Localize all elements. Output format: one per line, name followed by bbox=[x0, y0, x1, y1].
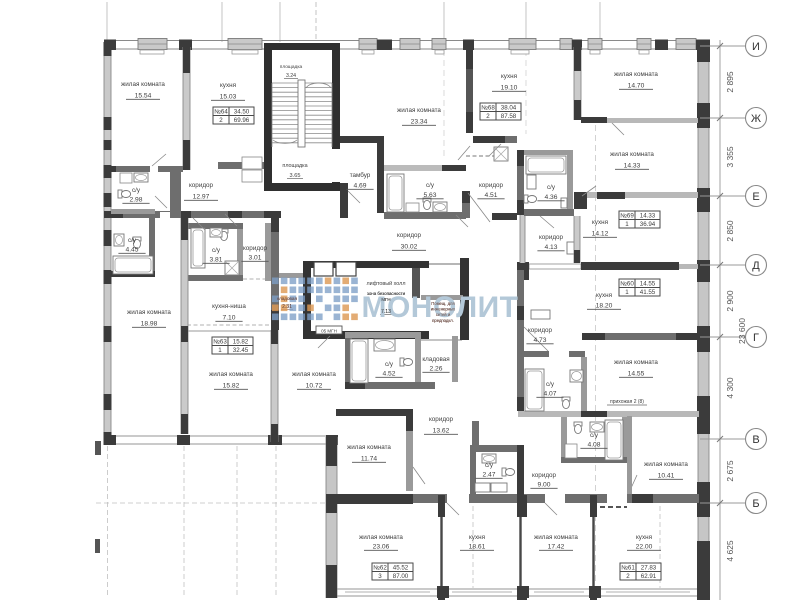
svg-text:прихожая 2 (8): прихожая 2 (8) bbox=[610, 399, 644, 405]
svg-text:4.07: 4.07 bbox=[543, 391, 556, 398]
svg-text:жилая комната: жилая комната bbox=[347, 444, 391, 451]
svg-text:3.01: 3.01 bbox=[248, 255, 261, 262]
svg-text:7.13: 7.13 bbox=[381, 309, 391, 315]
svg-text:15.54: 15.54 bbox=[135, 93, 152, 100]
svg-text:жилая комната: жилая комната bbox=[614, 359, 658, 366]
svg-text:Помещ. для: Помещ. для bbox=[431, 301, 454, 306]
svg-text:14.55: 14.55 bbox=[640, 281, 656, 288]
svg-text:15.82: 15.82 bbox=[233, 339, 249, 346]
svg-text:№69: №69 bbox=[620, 213, 634, 220]
svg-text:4.51: 4.51 bbox=[484, 192, 497, 199]
svg-text:площадка: площадка bbox=[282, 163, 307, 169]
svg-text:И: И bbox=[752, 41, 760, 53]
svg-text:3.65: 3.65 bbox=[290, 173, 301, 179]
svg-text:36.94: 36.94 bbox=[640, 221, 656, 228]
svg-text:№64: №64 bbox=[214, 109, 228, 116]
svg-text:3.24: 3.24 bbox=[286, 73, 296, 79]
svg-text:Д: Д bbox=[752, 260, 760, 272]
svg-text:38.04: 38.04 bbox=[501, 105, 517, 112]
svg-text:7.10: 7.10 bbox=[222, 315, 235, 322]
svg-text:зона безопасности: зона безопасности bbox=[367, 291, 406, 296]
svg-text:19.10: 19.10 bbox=[501, 85, 518, 92]
svg-text:Е: Е bbox=[752, 191, 759, 203]
svg-text:кухня: кухня bbox=[636, 534, 652, 541]
svg-text:27.83: 27.83 bbox=[641, 565, 657, 572]
svg-text:с/у: с/у bbox=[546, 381, 555, 388]
svg-text:4.36: 4.36 bbox=[544, 194, 557, 201]
svg-text:87.00: 87.00 bbox=[393, 573, 409, 580]
svg-text:кухня: кухня bbox=[501, 73, 517, 80]
svg-text:коридор: коридор bbox=[243, 245, 268, 252]
svg-text:69.96: 69.96 bbox=[234, 117, 250, 124]
svg-text:2.31: 2.31 bbox=[282, 304, 292, 310]
svg-text:с/у: с/у bbox=[385, 361, 394, 368]
svg-text:34.50: 34.50 bbox=[234, 109, 250, 116]
svg-text:10.41: 10.41 bbox=[658, 473, 675, 480]
svg-text:коридор: коридор bbox=[479, 182, 504, 189]
svg-text:с/у: с/у bbox=[590, 432, 599, 439]
svg-text:4.45: 4.45 bbox=[125, 247, 138, 254]
svg-text:коридор: коридор bbox=[528, 327, 553, 334]
svg-text:62.91: 62.91 bbox=[641, 573, 657, 580]
svg-text:4.73: 4.73 bbox=[533, 337, 546, 344]
svg-text:жилая комната: жилая комната bbox=[209, 371, 253, 378]
svg-text:коридор: коридор bbox=[397, 232, 422, 239]
svg-text:4.08: 4.08 bbox=[587, 442, 600, 449]
svg-text:коридор: коридор bbox=[532, 472, 557, 479]
svg-text:4 625: 4 625 bbox=[725, 540, 735, 562]
svg-text:4.52: 4.52 bbox=[382, 371, 395, 378]
svg-text:2.26: 2.26 bbox=[429, 366, 442, 373]
svg-text:№61: №61 bbox=[621, 565, 635, 572]
svg-text:жилая комната: жилая комната bbox=[610, 151, 654, 158]
svg-text:сетей и: сетей и bbox=[436, 312, 451, 317]
svg-text:5.63: 5.63 bbox=[423, 192, 436, 199]
svg-text:жилая комната: жилая комната bbox=[397, 107, 441, 114]
svg-text:11.74: 11.74 bbox=[361, 456, 378, 463]
svg-text:кухня: кухня bbox=[596, 292, 612, 299]
svg-text:2.98: 2.98 bbox=[129, 197, 142, 204]
svg-text:жилая комната: жилая комната bbox=[121, 81, 165, 88]
svg-text:4 300: 4 300 bbox=[725, 377, 735, 399]
svg-text:15.82: 15.82 bbox=[223, 383, 240, 390]
svg-text:18.98: 18.98 bbox=[141, 321, 158, 328]
svg-text:с/у: с/у bbox=[132, 187, 141, 194]
svg-text:тамбур: тамбур bbox=[350, 171, 371, 179]
svg-text:14.12: 14.12 bbox=[592, 231, 609, 238]
svg-text:45.52: 45.52 bbox=[393, 565, 409, 572]
svg-text:№68: №68 bbox=[481, 105, 495, 112]
svg-text:коридор: коридор bbox=[189, 182, 214, 189]
svg-text:2 675: 2 675 bbox=[725, 460, 735, 482]
svg-text:В: В bbox=[752, 434, 759, 446]
svg-text:18.61: 18.61 bbox=[469, 544, 486, 551]
svg-text:кухня-ниша: кухня-ниша bbox=[212, 303, 246, 310]
svg-text:23.06: 23.06 bbox=[373, 544, 390, 551]
svg-text:кладовая: кладовая bbox=[277, 296, 297, 301]
svg-text:32.45: 32.45 bbox=[233, 347, 249, 354]
svg-text:жилая комната: жилая комната bbox=[359, 534, 403, 541]
svg-text:Г: Г bbox=[753, 332, 759, 344]
svg-text:30.02: 30.02 bbox=[401, 244, 418, 251]
svg-text:10.72: 10.72 bbox=[306, 383, 323, 390]
svg-text:лифтовый холл: лифтовый холл bbox=[367, 280, 406, 287]
svg-text:жилая комната: жилая комната bbox=[614, 71, 658, 78]
svg-text:1: 1 bbox=[218, 347, 222, 354]
svg-text:14.33: 14.33 bbox=[624, 163, 641, 170]
svg-text:Б: Б bbox=[752, 498, 759, 510]
svg-text:4.69: 4.69 bbox=[353, 183, 366, 190]
svg-text:2: 2 bbox=[626, 573, 630, 580]
svg-text:2.47: 2.47 bbox=[482, 472, 495, 479]
svg-text:с/у: с/у bbox=[485, 462, 494, 469]
svg-text:жилая комната: жилая комната bbox=[534, 534, 578, 541]
svg-text:коридор: коридор bbox=[539, 234, 564, 241]
svg-text:2 895: 2 895 bbox=[725, 71, 735, 93]
svg-text:кладовая: кладовая bbox=[422, 356, 449, 363]
svg-text:23.34: 23.34 bbox=[411, 119, 428, 126]
svg-text:с/у: с/у bbox=[128, 237, 137, 244]
svg-text:3: 3 bbox=[378, 573, 382, 580]
svg-text:жилая комната: жилая комната bbox=[644, 461, 688, 468]
svg-text:2: 2 bbox=[486, 113, 490, 120]
svg-text:кухня: кухня bbox=[220, 82, 236, 89]
svg-text:кухня: кухня bbox=[592, 219, 608, 226]
svg-text:1: 1 bbox=[625, 221, 629, 228]
svg-text:05 МГН: 05 МГН bbox=[321, 329, 337, 334]
svg-text:кухня: кухня bbox=[469, 534, 485, 541]
svg-text:площадка: площадка bbox=[280, 65, 303, 70]
svg-text:14.70: 14.70 bbox=[628, 83, 645, 90]
svg-text:2: 2 bbox=[219, 117, 223, 124]
svg-text:2 900: 2 900 bbox=[725, 290, 735, 312]
svg-text:13.62: 13.62 bbox=[433, 428, 450, 435]
svg-text:коридор: коридор bbox=[429, 416, 454, 423]
svg-text:4.13: 4.13 bbox=[544, 244, 557, 251]
svg-text:жилая комната: жилая комната bbox=[292, 371, 336, 378]
svg-text:жилая комната: жилая комната bbox=[127, 309, 171, 316]
svg-text:14.55: 14.55 bbox=[628, 371, 645, 378]
svg-text:МГН: МГН bbox=[381, 297, 390, 302]
svg-text:с/у: с/у bbox=[212, 247, 221, 254]
svg-text:№60: №60 bbox=[620, 281, 634, 288]
svg-text:41.55: 41.55 bbox=[640, 289, 656, 296]
svg-text:23 600: 23 600 bbox=[737, 318, 747, 344]
svg-text:с/у: с/у bbox=[426, 182, 435, 189]
svg-text:Ж: Ж bbox=[751, 113, 761, 125]
svg-text:№62: №62 bbox=[373, 565, 387, 572]
svg-text:18.20: 18.20 bbox=[596, 303, 613, 310]
svg-text:12.97: 12.97 bbox=[193, 194, 210, 201]
svg-text:87.58: 87.58 bbox=[501, 113, 517, 120]
svg-text:3.81: 3.81 bbox=[209, 257, 222, 264]
svg-text:инженерных: инженерных bbox=[431, 307, 456, 312]
svg-text:15.03: 15.03 bbox=[220, 94, 237, 101]
svg-text:2 850: 2 850 bbox=[725, 220, 735, 242]
svg-text:предподкл.: предподкл. bbox=[432, 318, 454, 323]
svg-text:14.33: 14.33 bbox=[640, 213, 656, 220]
svg-text:22.00: 22.00 bbox=[636, 544, 653, 551]
svg-text:№63: №63 bbox=[213, 339, 227, 346]
svg-text:3 355: 3 355 bbox=[725, 146, 735, 168]
svg-text:17.42: 17.42 bbox=[548, 544, 565, 551]
svg-text:1: 1 bbox=[625, 289, 629, 296]
svg-text:с/у: с/у bbox=[547, 184, 556, 191]
svg-text:9.00: 9.00 bbox=[537, 482, 550, 489]
